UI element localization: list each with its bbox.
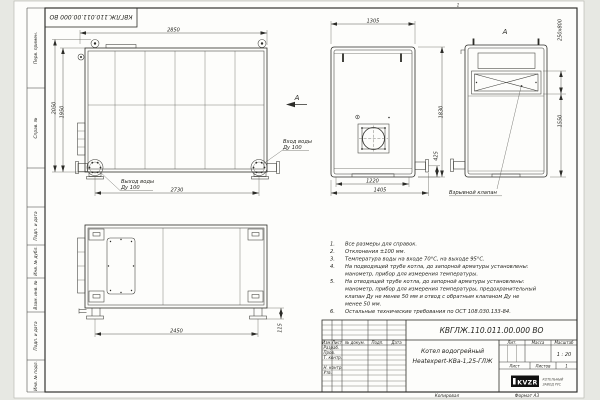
dim-2050-text: 2050 bbox=[52, 102, 58, 115]
dim-1830-text: 1830 bbox=[439, 106, 445, 119]
note-line: Остальные технические требования по ОСТ … bbox=[345, 309, 511, 315]
margin-label-sprav-no: Справ. № bbox=[33, 117, 39, 138]
note-line: На отводящей трубе котла, до запорной ар… bbox=[345, 279, 525, 285]
dim-1220-text: 1220 bbox=[366, 179, 379, 185]
designation: КВГЛЖ.110.011.00.000 ВО bbox=[440, 326, 544, 335]
margin-label-podp-data-1: Подп. и дата bbox=[33, 211, 39, 241]
outlet-du-label: Ду 100 bbox=[120, 185, 140, 191]
view-arrow-letter: А bbox=[294, 94, 300, 102]
lit-header: Лит. bbox=[506, 340, 516, 345]
company-line-2: ЗАВОД РУС bbox=[543, 383, 562, 387]
dim-1405-text: 1405 bbox=[374, 188, 387, 194]
product-name-1: Котел водогрейный bbox=[421, 348, 484, 355]
margin-label-perv-primen: Перв. примен. bbox=[33, 32, 39, 64]
col-doc: № докум. bbox=[344, 340, 365, 345]
company-line-1: КОТЕЛЬНЫЙ bbox=[543, 377, 564, 382]
dim-1950-text: 1950 bbox=[60, 106, 66, 119]
note-num-2: 2. bbox=[330, 249, 335, 255]
note-line: На подводящей трубе котла, до запорной а… bbox=[345, 264, 529, 270]
note-line: клапан Ду не менее 50 мм и отвод с обрат… bbox=[345, 294, 519, 300]
dim-2730-text: 2730 bbox=[171, 188, 184, 194]
scale-value: 1 : 20 bbox=[557, 352, 571, 358]
note-line: манометр, прибор для измерения температу… bbox=[345, 272, 478, 278]
sheets-value: 1 bbox=[565, 364, 568, 369]
dim-2450-text: 2450 bbox=[170, 329, 183, 335]
note-num-5: 5. bbox=[330, 279, 335, 285]
sheet-frame: Перв. примен. Справ. № Подп. и дата Инв.… bbox=[14, 1, 584, 398]
inlet-du-label: Ду 100 bbox=[282, 145, 302, 151]
note-num-1: 1. bbox=[330, 242, 335, 248]
product-name-2: Heatexpert-КВа-1,25-ГЛЖ bbox=[412, 358, 493, 365]
dim-425-text: 425 bbox=[434, 151, 440, 161]
copied-label: Копировал bbox=[435, 393, 460, 399]
zone-mark: 1 bbox=[457, 3, 460, 8]
row-tcontrol: Т. контр. bbox=[324, 355, 343, 360]
dim-250x800-text: 250х800 bbox=[558, 19, 564, 41]
margin-label-vzam-inv: Взам. инв. № bbox=[33, 280, 39, 310]
note-num-4: 4. bbox=[330, 264, 335, 270]
note-line: Все размеры для справок. bbox=[345, 242, 417, 248]
note-line: менее 50 мм. bbox=[345, 302, 381, 308]
margin-label-inv-dubl: Инв. № дубл. bbox=[33, 246, 39, 275]
drawing-sheet-svg: Перв. примен. Справ. № Подп. и дата Инв.… bbox=[0, 0, 600, 400]
col-date: Дата bbox=[390, 340, 402, 345]
dim-1550-text: 1550 bbox=[558, 115, 564, 128]
dim-2850-text: 2850 bbox=[167, 28, 180, 34]
note-line: Отклонения ±100 мм. bbox=[345, 249, 405, 255]
mass-header: Масса bbox=[532, 340, 545, 345]
sheet-header: Лист bbox=[508, 364, 520, 369]
note-num-6: 6. bbox=[330, 309, 335, 315]
dim-1305-text: 1305 bbox=[367, 19, 380, 25]
format-label: Формат А3 bbox=[515, 393, 540, 399]
sheets-header: Листов bbox=[535, 364, 552, 369]
col-sign: Подп. bbox=[371, 340, 383, 345]
note-line: манометр, прибор для измерения температу… bbox=[345, 287, 537, 293]
company-logo: KVZR КОТЕЛЬНЫЙ ЗАВОД РУС bbox=[511, 376, 564, 388]
logo-text: KVZR bbox=[517, 380, 537, 387]
top-stamp-text: КВГЛЖ.110.011.00.000 ВО bbox=[49, 13, 132, 20]
scale-header: Масштаб bbox=[554, 340, 574, 345]
note-line: Температура воды на входе 70°С, на выход… bbox=[345, 257, 485, 263]
drawing-page: { "frame": { "top_stamp": "КВГЛЖ.110.011… bbox=[0, 0, 600, 400]
note-num-3: 3. bbox=[330, 257, 335, 263]
burner-flange bbox=[358, 124, 389, 153]
explosion-valve-label: Взрывной клапан bbox=[449, 190, 498, 196]
dim-115-text: 115 bbox=[278, 323, 284, 333]
rear-view-letter: А bbox=[502, 28, 508, 36]
row-approved: Утв. bbox=[324, 370, 332, 375]
margin-label-inv-podl: Инв. № подл. bbox=[33, 361, 39, 391]
margin-label-podp-data-2: Подп. и дата bbox=[33, 321, 39, 351]
